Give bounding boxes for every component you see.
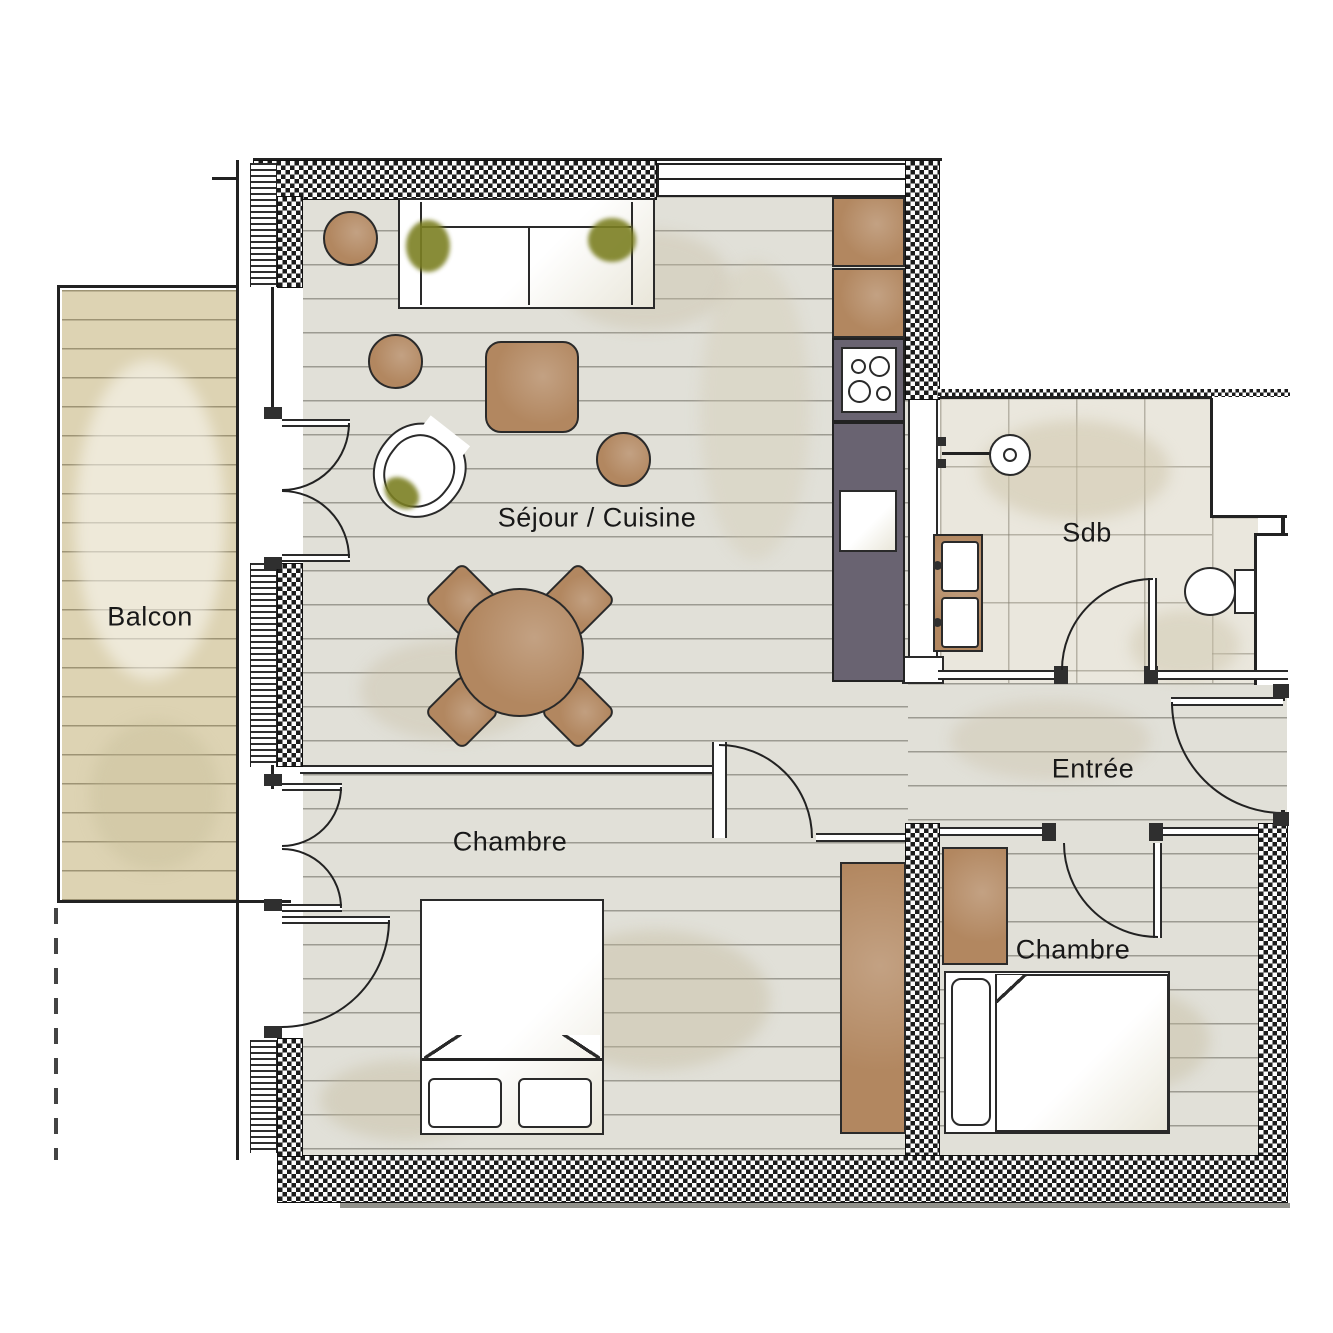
burner bbox=[851, 359, 866, 374]
door-arc bbox=[282, 787, 342, 847]
outside-area bbox=[938, 150, 1290, 396]
balcony-edge-top bbox=[57, 285, 239, 288]
wall-left-1 bbox=[277, 196, 303, 288]
door-post bbox=[264, 557, 282, 569]
pillow bbox=[518, 1078, 592, 1128]
dining-table bbox=[455, 588, 584, 717]
wall-bath-bottom-left bbox=[938, 670, 1066, 680]
door-post bbox=[1273, 684, 1289, 698]
kitchen-counter bbox=[832, 422, 905, 682]
wall-bottom-shadow bbox=[340, 1203, 1290, 1208]
wall-left-outer bbox=[236, 160, 239, 1160]
burner bbox=[848, 380, 871, 403]
floor-stain bbox=[700, 260, 810, 560]
floor-plan: Balcon Séjour / Cuisine Sdb Entrée Chamb… bbox=[0, 0, 1333, 1333]
sofa-cushion-divider bbox=[528, 228, 530, 305]
wall-left-3 bbox=[277, 1038, 303, 1157]
door-arc bbox=[282, 423, 350, 491]
door-arc bbox=[1063, 843, 1158, 938]
pouf bbox=[368, 334, 423, 389]
door-post bbox=[1273, 812, 1289, 826]
door-arc bbox=[282, 920, 390, 1028]
door-arc bbox=[282, 848, 342, 908]
room-label-balcony: Balcon bbox=[107, 602, 193, 633]
door-post bbox=[264, 899, 282, 911]
plant bbox=[588, 218, 636, 262]
balcony-edge-left bbox=[57, 285, 60, 903]
room-label-bedroom-right: Chambre bbox=[1016, 935, 1131, 966]
room-label-bedroom-left: Chambre bbox=[453, 827, 568, 858]
room-label-living-kitchen: Séjour / Cuisine bbox=[498, 503, 697, 534]
window-left-3 bbox=[250, 1040, 277, 1153]
balcony-edge-bottom bbox=[57, 900, 291, 903]
wall-hall-south-right bbox=[1163, 827, 1262, 836]
wall-right-lower bbox=[1258, 823, 1288, 1160]
shower-valve bbox=[936, 437, 946, 446]
door-post bbox=[264, 407, 282, 419]
shower-head-center bbox=[1003, 448, 1017, 462]
kitchen-sink bbox=[839, 490, 897, 552]
toilet-tank bbox=[1234, 569, 1256, 614]
wall-bath-bottom-right bbox=[1150, 670, 1288, 680]
pillow bbox=[428, 1078, 502, 1128]
side-table bbox=[323, 211, 378, 266]
coffee-table bbox=[485, 341, 579, 433]
room-label-entry: Entrée bbox=[1052, 754, 1135, 785]
window-left-1 bbox=[250, 163, 277, 287]
wall-left-2 bbox=[277, 563, 303, 767]
pillow bbox=[951, 978, 991, 1126]
floor-stain bbox=[90, 720, 220, 870]
wall-top bbox=[253, 160, 657, 200]
door-post bbox=[1149, 823, 1163, 841]
stove bbox=[841, 347, 897, 413]
door-arc bbox=[719, 744, 813, 838]
wardrobe bbox=[840, 862, 906, 1134]
kitchen-cabinet bbox=[832, 197, 905, 267]
wall-hall-south-left bbox=[938, 827, 1048, 836]
wall-pillar-kitchen bbox=[905, 160, 940, 400]
kitchen-cabinet bbox=[832, 268, 905, 338]
pouf bbox=[596, 432, 651, 487]
duct-shaft bbox=[1210, 398, 1287, 518]
door-post bbox=[264, 774, 282, 786]
sofa-armrest-line bbox=[631, 202, 633, 305]
boundary-dashed-line bbox=[54, 908, 58, 1160]
wall-toilet-nook bbox=[1254, 533, 1288, 685]
door-arc bbox=[1061, 578, 1153, 670]
sink-basin bbox=[941, 541, 979, 592]
door-arc bbox=[282, 490, 350, 558]
toilet-bowl bbox=[1184, 567, 1236, 616]
window-left-2 bbox=[250, 563, 277, 767]
door-post bbox=[264, 1026, 282, 1038]
wall-left-seg bbox=[271, 287, 274, 412]
door-post bbox=[1042, 823, 1056, 841]
wall-between-bedrooms bbox=[905, 823, 940, 1160]
fold-corner bbox=[997, 975, 1027, 1003]
burner bbox=[876, 386, 891, 401]
shower-valve bbox=[936, 459, 946, 468]
wall-bottom bbox=[277, 1155, 1288, 1203]
fold-corner bbox=[424, 1035, 462, 1060]
burner bbox=[869, 356, 890, 377]
window-top bbox=[657, 163, 907, 197]
fold-corner bbox=[562, 1035, 600, 1060]
wall-tick bbox=[212, 177, 238, 180]
plant bbox=[406, 220, 450, 272]
sink-basin bbox=[941, 597, 979, 648]
room-label-bathroom: Sdb bbox=[1062, 518, 1112, 549]
wardrobe bbox=[942, 847, 1008, 965]
faucet bbox=[933, 561, 942, 570]
wall-bedroom-left-top bbox=[816, 833, 908, 842]
door-arc-entry bbox=[1171, 702, 1283, 814]
wall-living-bedroom bbox=[300, 765, 714, 774]
wall-bath-top bbox=[940, 396, 1212, 399]
faucet bbox=[933, 618, 942, 627]
